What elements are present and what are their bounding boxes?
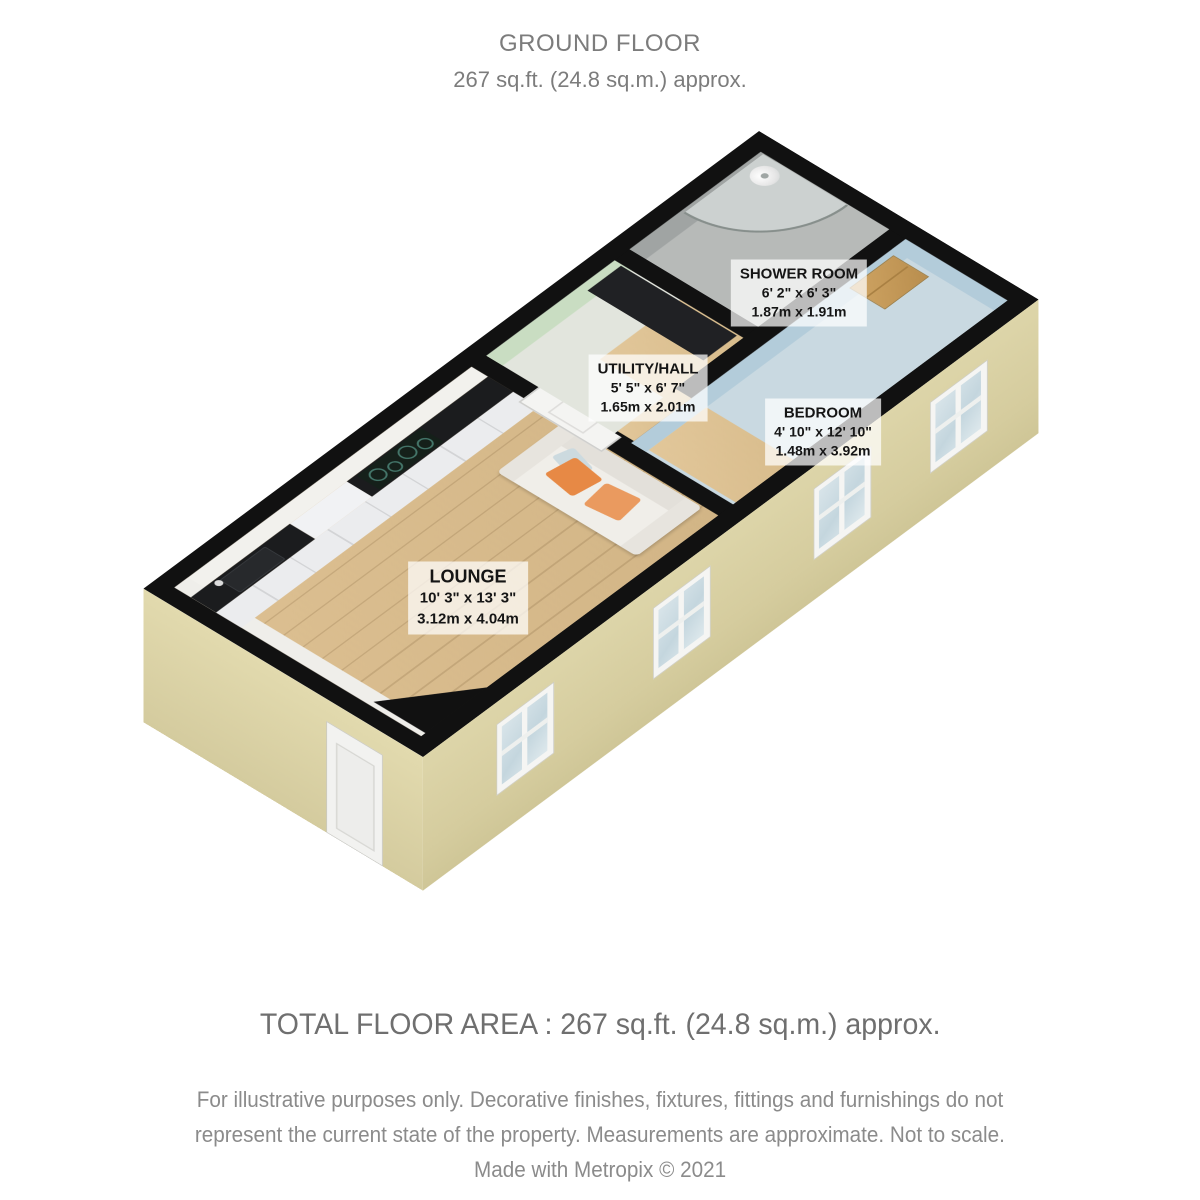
hob-ring bbox=[384, 459, 407, 474]
room-label-shower-room: SHOWER ROOM 6' 2" x 6' 3" 1.87m x 1.91m bbox=[731, 260, 867, 327]
room-size-imperial: 6' 2" x 6' 3" bbox=[740, 284, 858, 303]
credit-line: Made with Metropix © 2021 bbox=[0, 1154, 1200, 1189]
sofa-cushion-orange bbox=[583, 483, 642, 522]
room-size-metric: 1.48m x 3.92m bbox=[774, 442, 872, 461]
sofa-cushion-orange bbox=[544, 457, 603, 497]
shower-head bbox=[744, 162, 786, 190]
kitchen-worktop-white bbox=[290, 481, 372, 538]
sofa-armrest bbox=[620, 498, 702, 557]
room-name: BEDROOM bbox=[774, 404, 872, 423]
hob-ring bbox=[413, 436, 437, 452]
disclaimer: For illustrative purposes only. Decorati… bbox=[0, 1084, 1200, 1189]
kitchen-tap bbox=[212, 579, 225, 588]
room-name: SHOWER ROOM bbox=[740, 265, 858, 284]
floorplan-header: GROUND FLOOR 267 sq.ft. (24.8 sq.m.) app… bbox=[0, 30, 1200, 93]
total-floor-area: TOTAL FLOOR AREA : 267 sq.ft. (24.8 sq.m… bbox=[0, 1008, 1200, 1042]
floorplan-page: { "header": { "title": "GROUND FLOOR", "… bbox=[0, 0, 1200, 1200]
floorplan-3d-scene bbox=[143, 131, 1038, 757]
sofa-cushion-blue bbox=[552, 447, 594, 478]
lounge-window bbox=[497, 682, 555, 796]
exterior-door-panel bbox=[336, 742, 375, 851]
page-subtitle: 267 sq.ft. (24.8 sq.m.) approx. bbox=[0, 67, 1200, 93]
bedroom-window bbox=[930, 360, 988, 474]
room-size-metric: 1.65m x 2.01m bbox=[598, 398, 699, 417]
exterior-door bbox=[326, 721, 382, 866]
kitchen-sink bbox=[219, 546, 285, 592]
shower-head-nozzle bbox=[759, 172, 770, 180]
room-label-lounge: LOUNGE 10' 3" x 13' 3" 3.12m x 4.04m bbox=[408, 562, 528, 635]
room-size-metric: 3.12m x 4.04m bbox=[417, 609, 519, 630]
room-size-imperial: 10' 3" x 13' 3" bbox=[417, 588, 519, 609]
hob-ring bbox=[365, 466, 392, 484]
room-size-imperial: 5' 5" x 6' 7" bbox=[598, 379, 699, 398]
room-label-utility-hall: UTILITY/HALL 5' 5" x 6' 7" 1.65m x 2.01m bbox=[589, 355, 708, 422]
room-size-metric: 1.87m x 1.91m bbox=[740, 303, 858, 322]
room-label-bedroom: BEDROOM 4' 10" x 12' 10" 1.48m x 3.92m bbox=[765, 399, 881, 466]
disclaimer-line-2: represent the current state of the prope… bbox=[0, 1119, 1200, 1154]
page-title: GROUND FLOOR bbox=[0, 30, 1200, 58]
kitchen-worktop-black bbox=[191, 524, 315, 613]
total-floor-area-text: TOTAL FLOOR AREA : 267 sq.ft. (24.8 sq.m… bbox=[260, 1008, 941, 1042]
lounge-window bbox=[653, 565, 711, 679]
bedroom-chest-lid bbox=[866, 266, 909, 298]
room-name: UTILITY/HALL bbox=[598, 360, 699, 379]
hob-ring bbox=[393, 443, 421, 462]
room-name: LOUNGE bbox=[417, 567, 519, 588]
disclaimer-line-1: For illustrative purposes only. Decorati… bbox=[0, 1084, 1200, 1119]
room-size-imperial: 4' 10" x 12' 10" bbox=[774, 423, 872, 442]
